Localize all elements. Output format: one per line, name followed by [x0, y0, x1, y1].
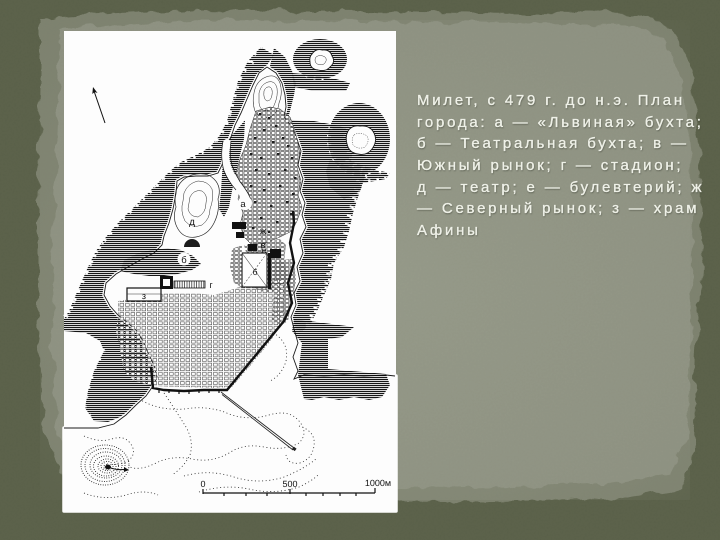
svg-text:500: 500 — [282, 479, 297, 489]
svg-text:б: б — [181, 255, 187, 266]
svg-text:1000м: 1000м — [365, 478, 391, 488]
svg-text:а: а — [240, 199, 246, 210]
svg-text:б: б — [253, 267, 258, 277]
svg-text:0: 0 — [200, 479, 205, 489]
svg-text:е: е — [262, 246, 267, 255]
svg-text:ж: ж — [260, 226, 266, 236]
svg-text:з: з — [142, 291, 146, 301]
svg-text:д: д — [189, 217, 195, 228]
